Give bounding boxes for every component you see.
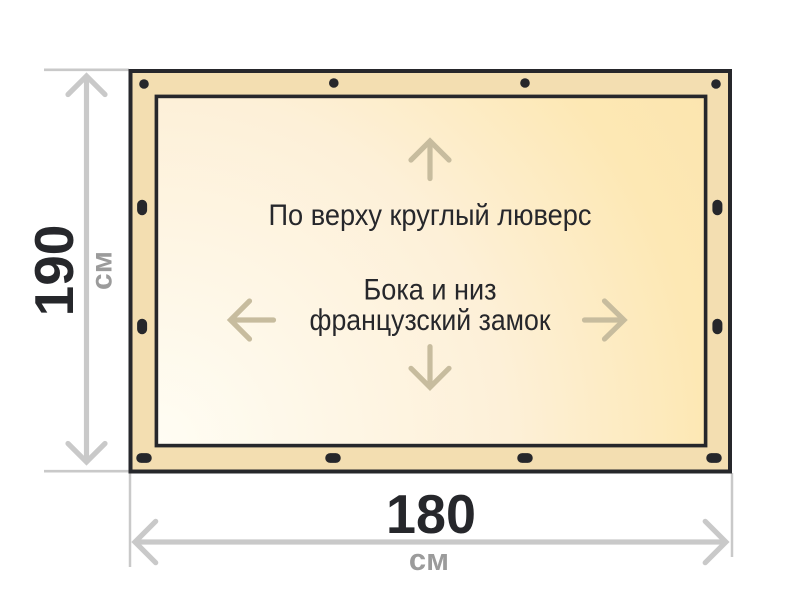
svg-text:французский замок: французский замок <box>310 304 552 337</box>
svg-text:180: 180 <box>386 484 476 546</box>
svg-text:190: 190 <box>23 225 85 317</box>
svg-text:Бока и низ: Бока и низ <box>364 274 497 307</box>
svg-text:По верху круглый люверс: По верху круглый люверс <box>269 199 592 232</box>
svg-text:см: см <box>86 251 119 290</box>
svg-text:см: см <box>409 542 449 577</box>
